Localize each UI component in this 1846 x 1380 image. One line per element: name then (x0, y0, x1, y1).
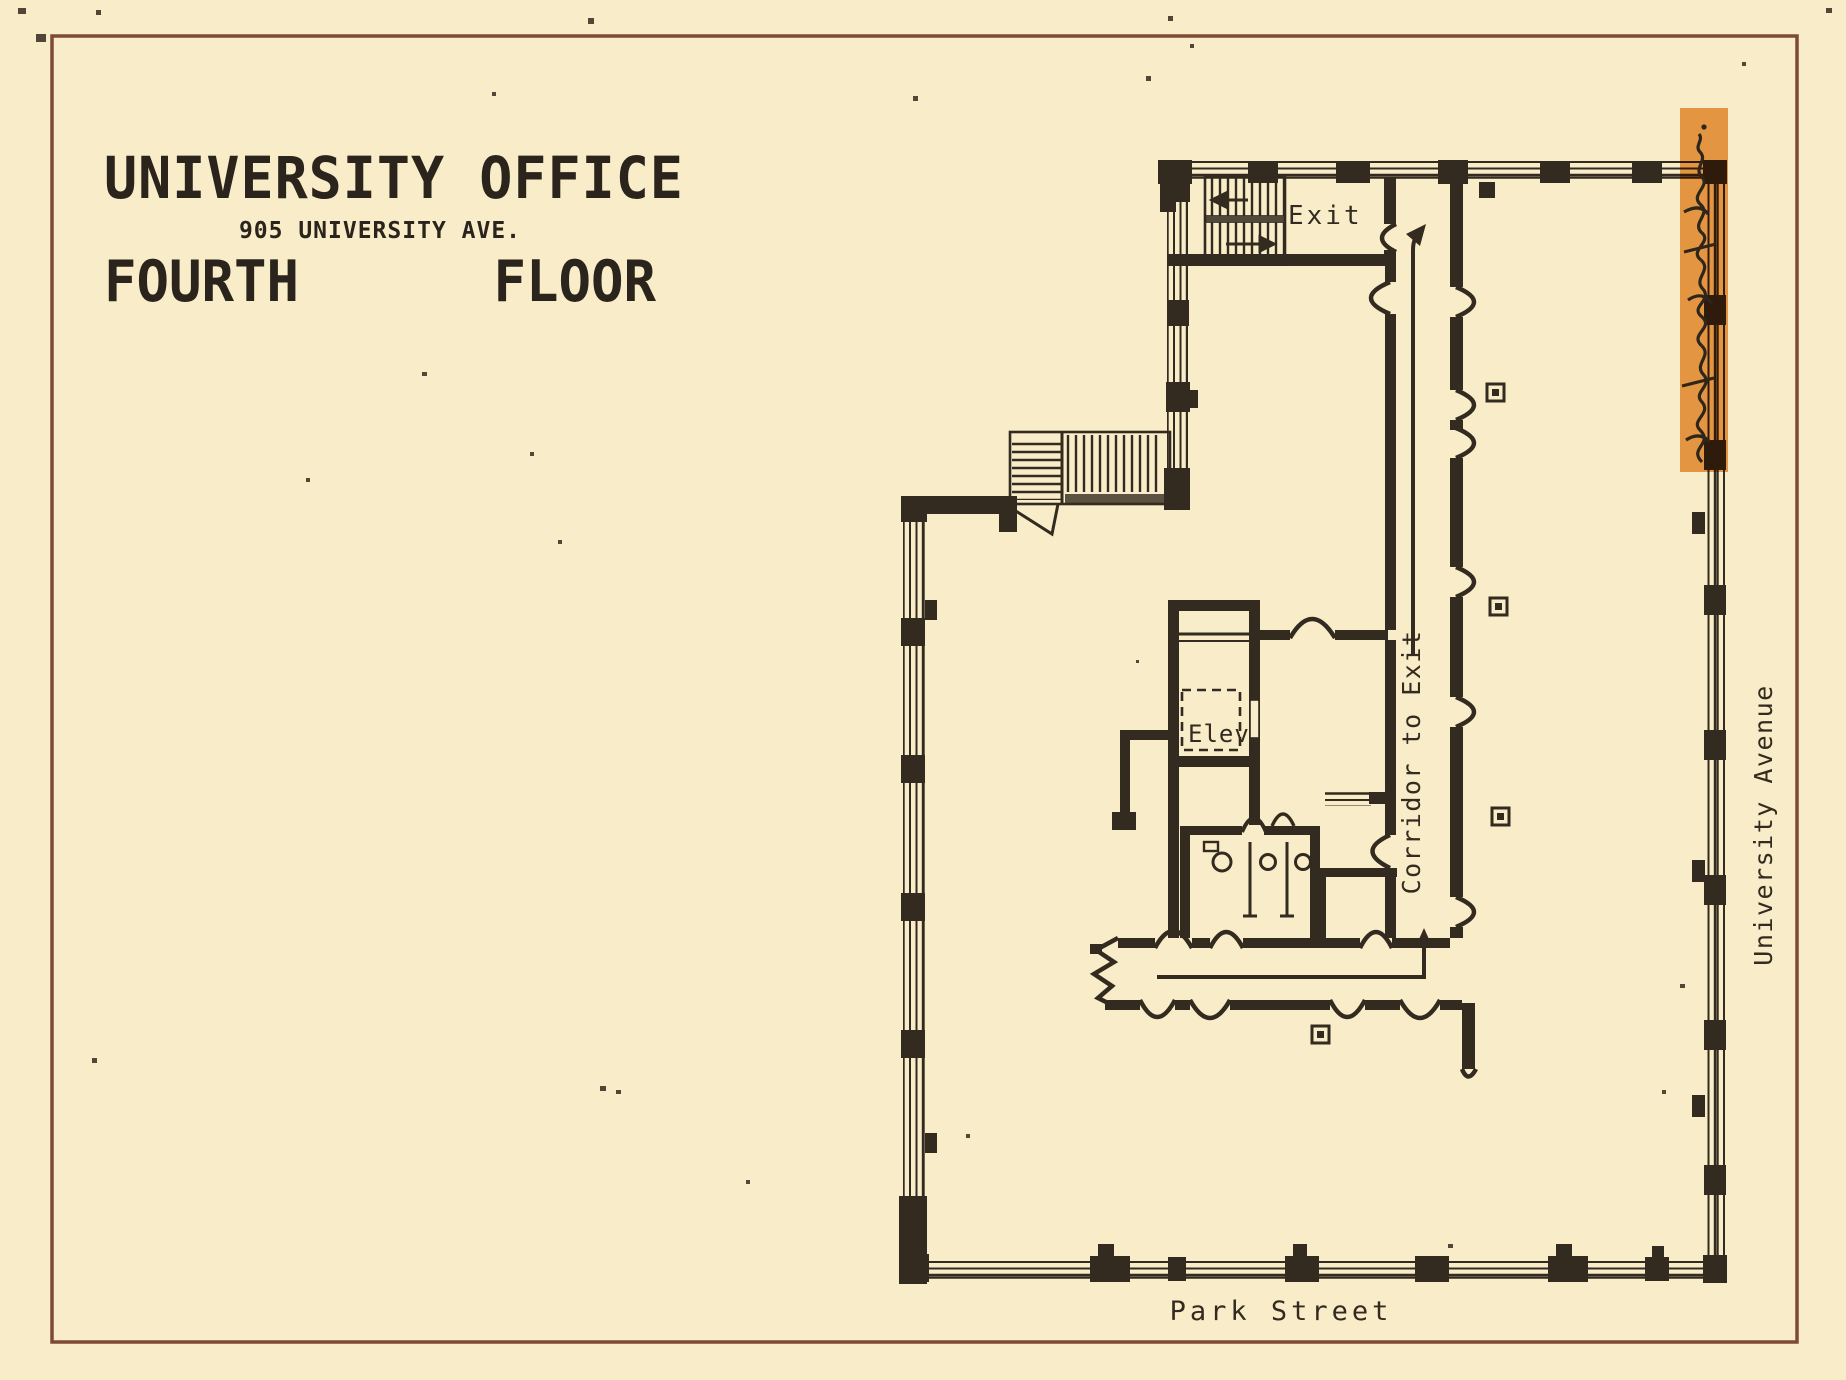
exterior-walls (899, 160, 1727, 1284)
sink-fixture (1213, 853, 1231, 871)
toilet-fixture (1261, 855, 1276, 870)
exit-label: Exit (1288, 201, 1363, 231)
door-arc (1272, 814, 1294, 826)
core-side-room (1260, 630, 1397, 938)
exit-stairwell: Exit (1168, 176, 1396, 266)
toilet-fixture (1296, 855, 1311, 870)
restroom (1180, 814, 1320, 938)
door-arc (1290, 619, 1335, 638)
park-street-label: Park Street (1170, 1296, 1393, 1327)
mid-stairwell (1008, 432, 1170, 534)
corridor-to-exit-label: Corridor to Exit (1397, 630, 1426, 895)
bottom-corridor (1090, 938, 1475, 1069)
elevator-label: Elev. (1188, 720, 1265, 748)
columns (1312, 182, 1509, 1043)
university-avenue-label: University Avenue (1749, 684, 1778, 965)
door-arc (1382, 224, 1396, 252)
floor-plan-drawing: Exit Elev. (0, 0, 1846, 1380)
